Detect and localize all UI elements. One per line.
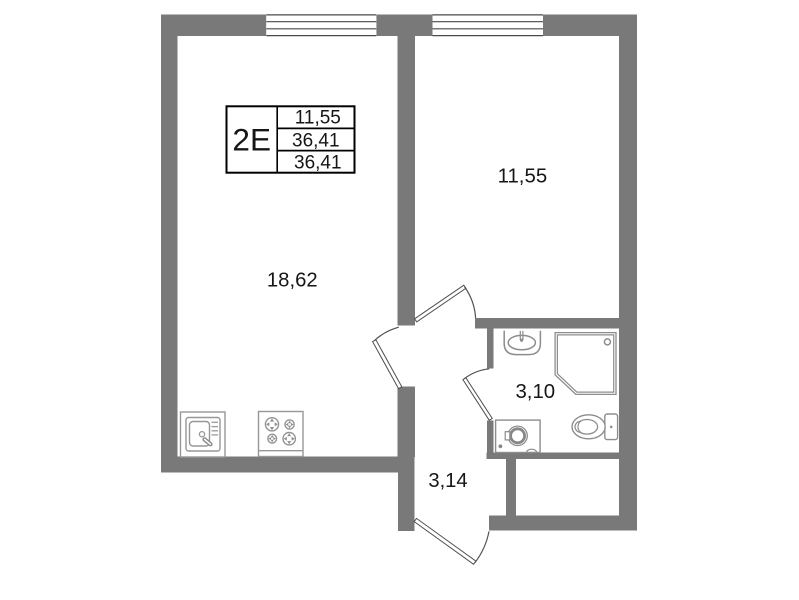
- svg-text:2E: 2E: [232, 122, 271, 158]
- svg-text:11,55: 11,55: [498, 165, 548, 187]
- svg-text:36,41: 36,41: [294, 153, 342, 174]
- svg-text:36,41: 36,41: [292, 130, 340, 151]
- svg-text:11,55: 11,55: [295, 108, 341, 129]
- svg-text:3,10: 3,10: [515, 381, 555, 403]
- svg-text:3,14: 3,14: [428, 470, 467, 492]
- svg-text:18,62: 18,62: [267, 269, 318, 291]
